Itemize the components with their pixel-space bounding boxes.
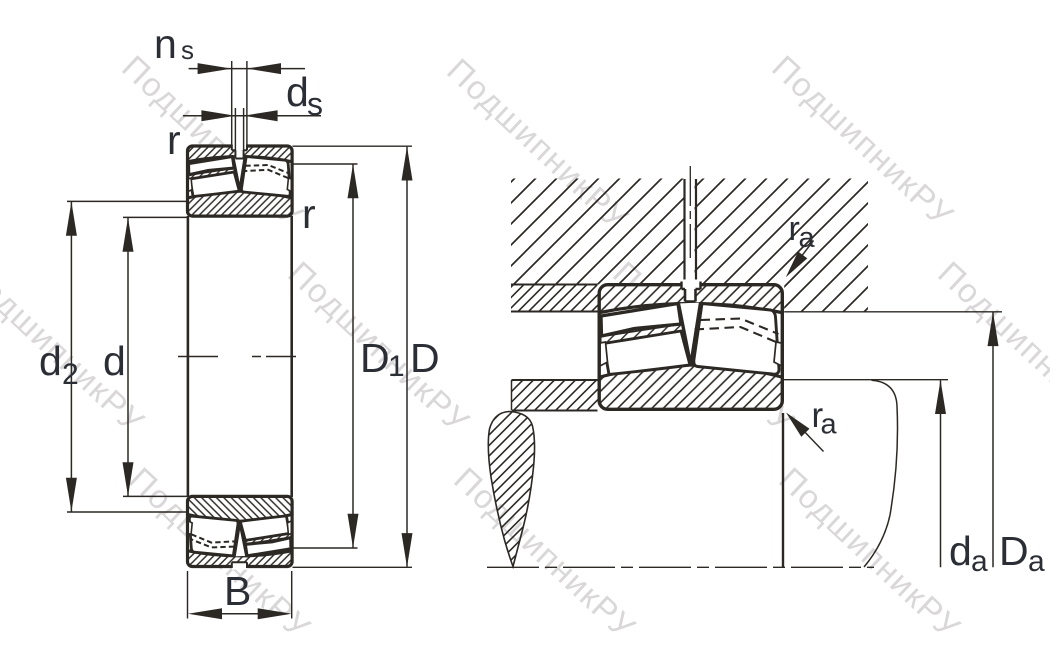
svg-text:n: n — [154, 21, 177, 67]
svg-text:d: d — [39, 338, 62, 384]
svg-text:a: a — [799, 222, 816, 254]
svg-text:d: d — [103, 338, 126, 384]
svg-text:2: 2 — [62, 358, 79, 391]
svg-text:a: a — [821, 409, 838, 441]
svg-text:d: d — [286, 69, 309, 115]
svg-text:ПодшипникРУ: ПодшипникРУ — [772, 460, 968, 646]
svg-text:1: 1 — [388, 350, 405, 383]
svg-text:ПодшипникРУ: ПодшипникРУ — [931, 254, 1050, 440]
svg-text:r: r — [167, 117, 181, 163]
svg-text:a: a — [1028, 545, 1045, 578]
svg-text:D: D — [999, 528, 1029, 574]
svg-text:r: r — [302, 191, 316, 237]
svg-text:d: d — [949, 528, 972, 574]
svg-text:ПодшипникРУ: ПодшипникРУ — [447, 460, 643, 646]
svg-text:ПодшипникРУ: ПодшипникРУ — [0, 254, 152, 440]
svg-text:B: B — [224, 568, 251, 614]
svg-text:D: D — [410, 335, 440, 381]
svg-text:s: s — [307, 86, 323, 122]
svg-text:a: a — [971, 545, 988, 578]
svg-text:s: s — [181, 35, 194, 65]
svg-text:D: D — [360, 335, 390, 381]
